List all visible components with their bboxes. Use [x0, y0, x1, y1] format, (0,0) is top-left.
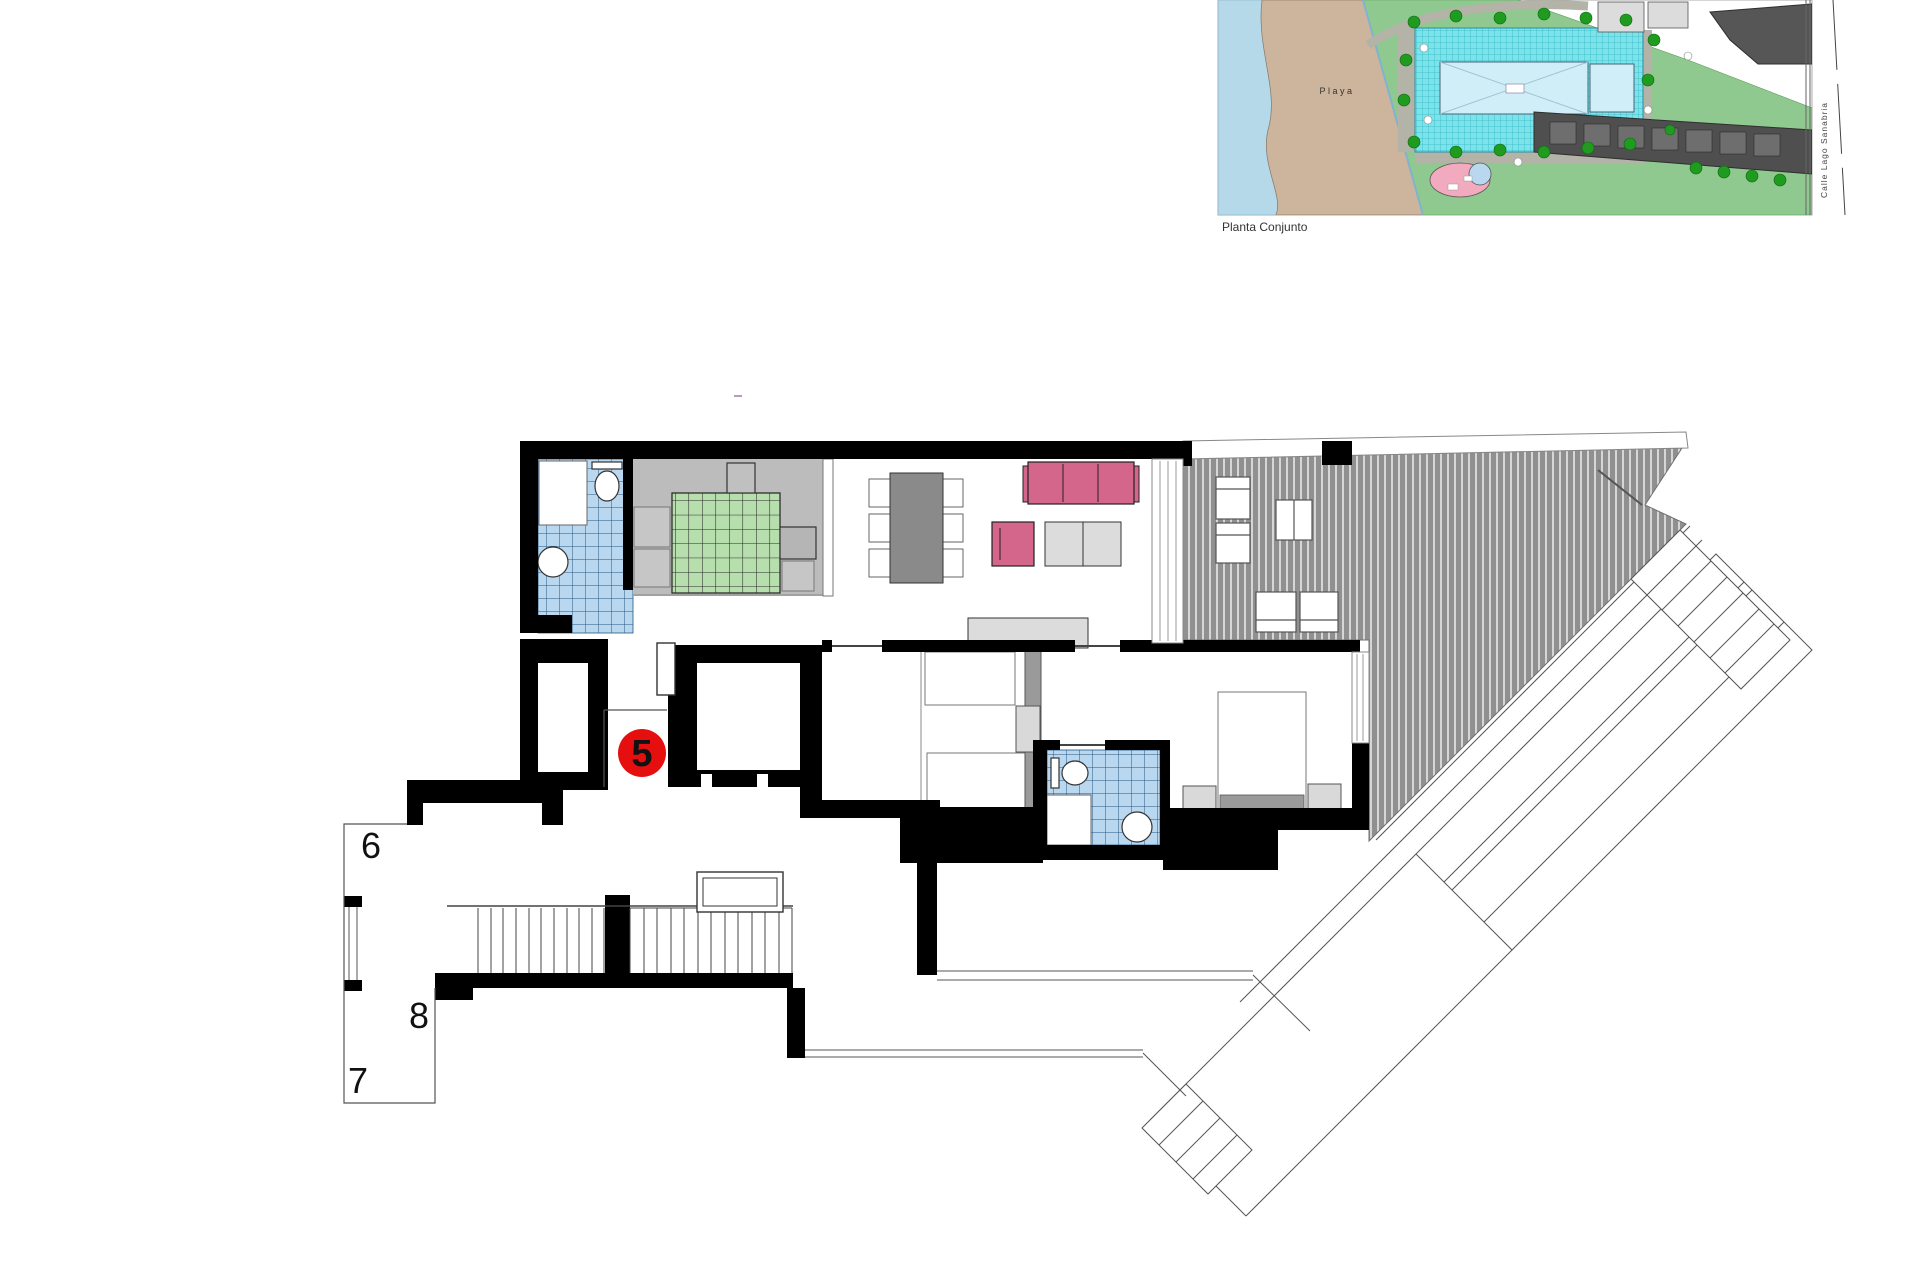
pond-deck: [1464, 176, 1472, 181]
unit-number-8[interactable]: 8: [409, 995, 429, 1036]
bed-green: [672, 493, 780, 593]
bedroom-1-sliding-door: [823, 459, 833, 596]
bathroom-1-shower: [539, 461, 587, 525]
toilet-icon: [595, 471, 619, 501]
unit-number-7[interactable]: 7: [348, 1060, 368, 1101]
bed-single: [925, 652, 1015, 705]
elevator-cab: [538, 663, 588, 772]
floor-plan: 5 6 8 7: [344, 396, 1812, 1216]
unit-badge-number[interactable]: 5: [631, 733, 652, 775]
sun-lounger: [1216, 477, 1250, 519]
entry-door-leaf: [657, 643, 675, 695]
path-strip: [1398, 28, 1415, 152]
unit-number-6[interactable]: 6: [361, 825, 381, 866]
screenshot-root: Playa Calle Lago Sanabria Planta Conjunt…: [0, 0, 1920, 1280]
landing-window-glass: [349, 907, 357, 980]
beach-label: Playa: [1319, 86, 1354, 96]
building-light: [1648, 2, 1688, 28]
exterior-steps-sw: [1142, 1084, 1252, 1194]
unit-5-badge[interactable]: 5: [618, 729, 666, 777]
spa-pool: [1469, 163, 1491, 185]
bedroom-2: [921, 648, 1041, 810]
plan-canvas: Playa Calle Lago Sanabria Planta Conjunt…: [0, 0, 1920, 1280]
master-bedroom: [1183, 692, 1341, 812]
nightstand: [1308, 784, 1341, 812]
dining-table: [890, 473, 943, 583]
pond-deck: [1448, 184, 1458, 190]
master-glass-door: [1352, 652, 1369, 743]
bed-double: [1218, 692, 1306, 810]
headboard: [1220, 795, 1304, 809]
lower-outline-1: [937, 971, 1310, 1031]
bathroom-2-shower: [1047, 795, 1091, 845]
sofa: [1028, 462, 1134, 504]
armchair: [992, 522, 1034, 566]
shaft-door-notch: [757, 774, 768, 787]
nightstand: [727, 463, 755, 493]
toilet-icon: [1062, 761, 1088, 785]
bed-single: [927, 753, 1030, 810]
dining-set: [869, 473, 963, 583]
inset-caption: Planta Conjunto: [1222, 220, 1308, 234]
toilet-tank: [592, 462, 622, 469]
stair-flight-right: [630, 908, 792, 973]
basin-icon: [538, 547, 568, 577]
terrace-chair: [1256, 592, 1296, 632]
terrace-chair: [1300, 592, 1338, 632]
kids-pool: [1590, 64, 1634, 112]
sofa-set: [992, 462, 1139, 566]
street-label: Calle Lago Sanabria: [1819, 102, 1829, 198]
lower-outline-2: [805, 1050, 1186, 1096]
stair-flight-left: [478, 908, 604, 973]
basin-icon: [1122, 812, 1152, 842]
toilet-tank: [1051, 758, 1059, 788]
shaft-door-notch: [701, 774, 712, 787]
street-line: [1833, 0, 1845, 215]
site-plan-inset: Playa: [1218, 0, 1812, 215]
pool-island: [1506, 84, 1524, 93]
sun-lounger: [1216, 523, 1250, 563]
